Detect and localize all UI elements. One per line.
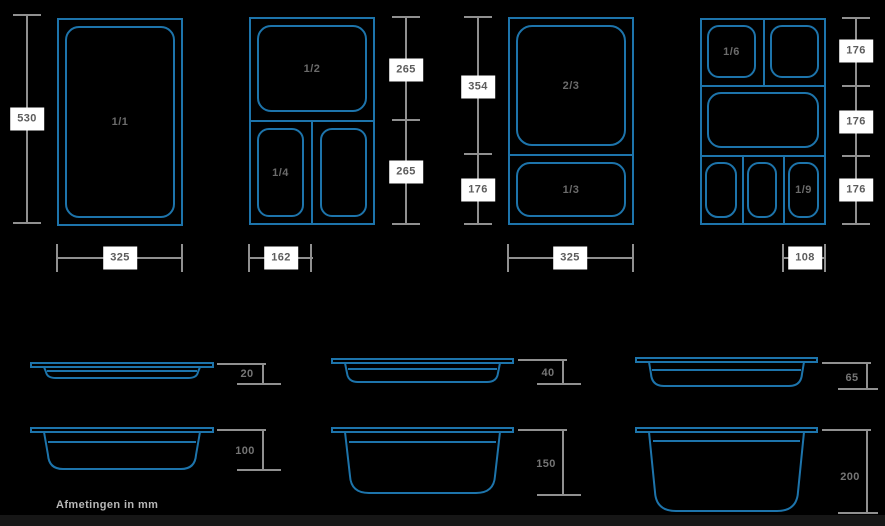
dimension-tick: [537, 383, 581, 385]
dimension-line: [866, 429, 868, 514]
pan-rim: [636, 358, 817, 362]
dimension-line: [822, 362, 871, 364]
gastronorm-dimensions-diagram: 1/1 530 325 1/2 1/4 265 265 162 2/3 1/3 …: [0, 0, 885, 526]
dimension-line: [262, 363, 264, 385]
side-view-pan-depth-65: [636, 358, 817, 386]
pan-rim: [332, 428, 513, 432]
pan-body: [44, 432, 200, 469]
side-view-pans-layer: [0, 0, 885, 526]
pan-rim: [636, 428, 817, 432]
depth-label-150: 150: [536, 458, 556, 470]
dimension-tick: [838, 388, 878, 390]
depth-label-65: 65: [845, 372, 858, 384]
dimension-line: [518, 429, 567, 431]
pan-body: [44, 367, 200, 378]
pan-rim: [31, 428, 213, 432]
pan-body: [345, 363, 500, 382]
pan-body: [649, 362, 804, 386]
side-view-pan-depth-200: [636, 428, 817, 511]
dimension-tick: [237, 383, 281, 385]
dimension-line: [562, 429, 564, 496]
side-view-pan-depth-100: [31, 428, 213, 469]
dimension-tick: [237, 469, 281, 471]
dimension-line: [217, 429, 266, 431]
side-view-pan-depth-20: [31, 363, 213, 378]
pan-rim: [332, 359, 513, 363]
dimension-line: [866, 362, 868, 390]
dimension-tick: [838, 512, 878, 514]
depth-label-100: 100: [235, 445, 255, 457]
depth-label-40: 40: [541, 367, 554, 379]
dimension-line: [262, 429, 264, 471]
depth-label-200: 200: [840, 471, 860, 483]
pan-body: [649, 432, 804, 511]
depth-label-20: 20: [240, 368, 253, 380]
bottom-bar: [0, 515, 885, 526]
dimension-line: [217, 363, 266, 365]
footnote-dimensions-in-mm: Afmetingen in mm: [56, 499, 158, 511]
pan-rim: [31, 363, 213, 367]
dimension-line: [822, 429, 871, 431]
dimension-line: [518, 359, 567, 361]
dimension-tick: [537, 494, 581, 496]
side-view-pan-depth-40: [332, 359, 513, 382]
side-view-pan-depth-150: [332, 428, 513, 493]
dimension-line: [562, 359, 564, 385]
